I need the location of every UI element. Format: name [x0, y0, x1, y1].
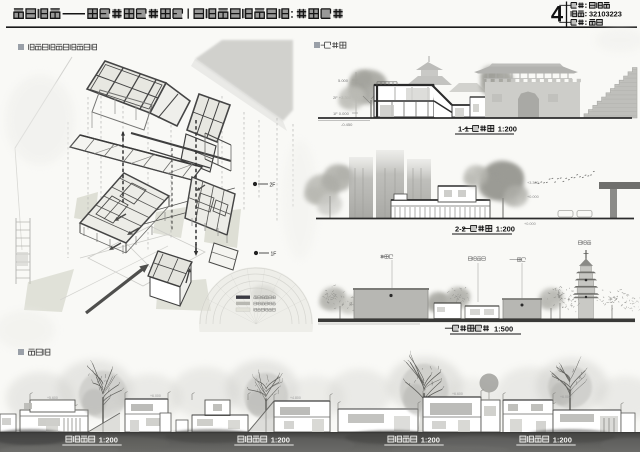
svg-text:1F 0.000: 1F 0.000	[333, 111, 350, 116]
svg-text:1:200: 1:200	[498, 125, 517, 134]
svg-text:+0.000: +0.000	[524, 222, 536, 226]
svg-text:1:200: 1:200	[496, 225, 515, 234]
svg-text:32103223: 32103223	[589, 10, 622, 19]
svg-text:5.000: 5.000	[338, 78, 349, 83]
svg-text:1:200: 1:200	[421, 435, 440, 444]
svg-text:2-2: 2-2	[455, 225, 466, 234]
svg-text:1F: 1F	[271, 251, 277, 257]
svg-text:+6.600: +6.600	[452, 392, 463, 396]
svg-text:1:200: 1:200	[553, 435, 572, 444]
svg-text:+4.800: +4.800	[290, 396, 301, 400]
svg-text:+6.000: +6.000	[560, 395, 571, 399]
svg-text:+6.000: +6.000	[150, 394, 161, 398]
svg-text:+5.600: +5.600	[47, 396, 58, 400]
svg-text:1:200: 1:200	[99, 435, 118, 444]
svg-text:+0.000: +0.000	[527, 195, 539, 199]
svg-text:1:500: 1:500	[494, 324, 513, 333]
svg-text:-0.450: -0.450	[341, 122, 353, 127]
svg-text:2F: 2F	[270, 182, 276, 188]
svg-text:1:200: 1:200	[271, 435, 290, 444]
svg-text:1-1: 1-1	[458, 125, 469, 134]
svg-text:+3.300: +3.300	[527, 181, 539, 185]
